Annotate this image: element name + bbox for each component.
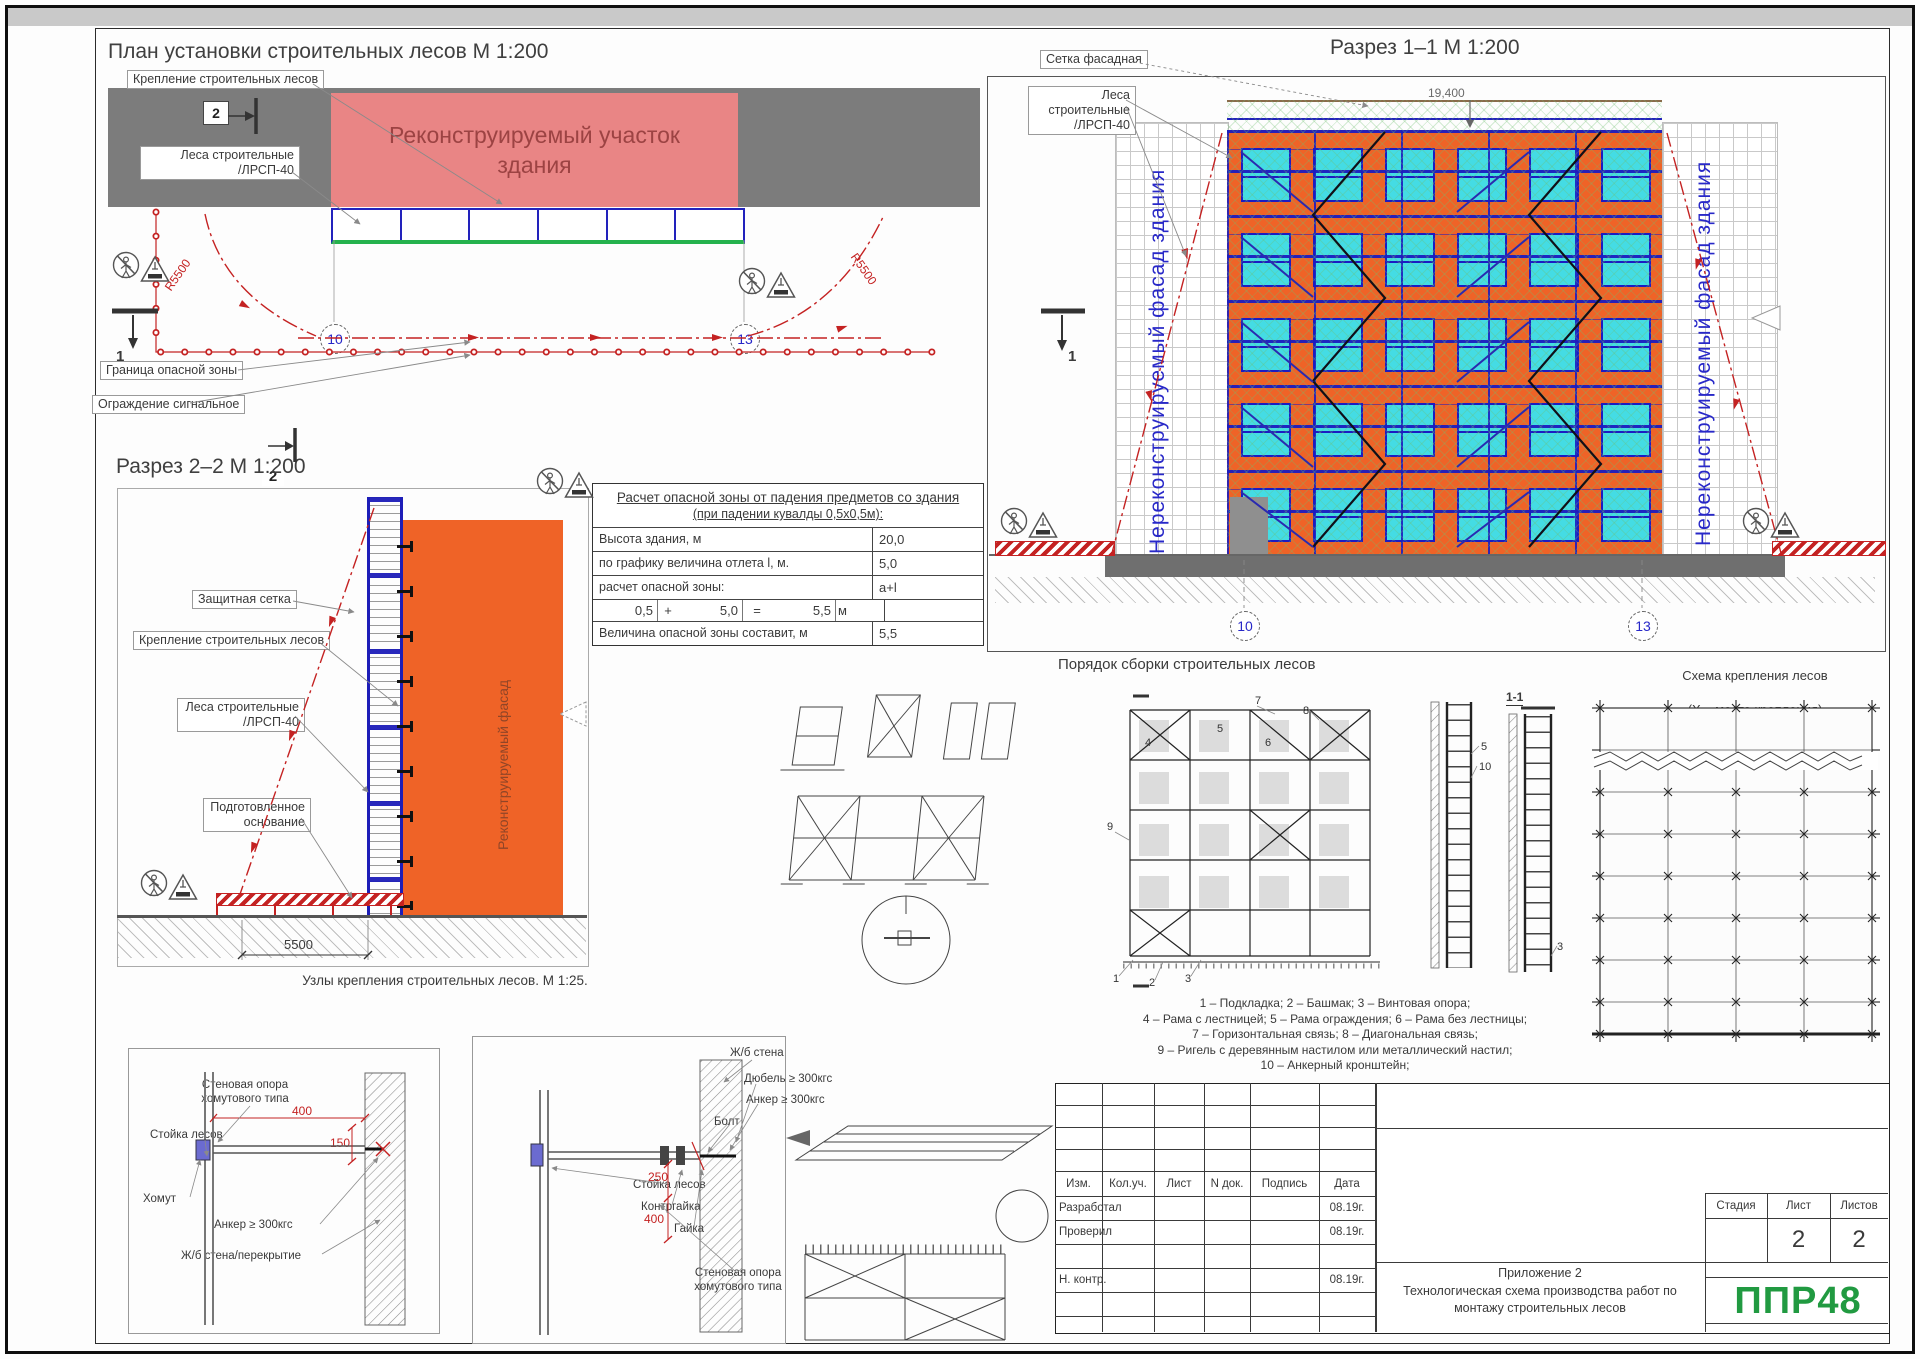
elevation-wall-opening	[1139, 876, 1169, 908]
elevation-wall-opening	[1139, 772, 1169, 804]
elevation-wall-opening	[1319, 876, 1349, 908]
tb-sheet-number: 2	[1767, 1218, 1830, 1262]
tb-sheet-label: Лист	[1767, 1193, 1830, 1218]
tb-line	[1705, 1323, 1888, 1324]
callout-10: 10	[1479, 761, 1491, 773]
tb-appendix: Приложение 2	[1375, 1266, 1705, 1280]
tb-line	[1055, 1316, 1375, 1317]
elevation-wall-opening	[1139, 824, 1169, 856]
no-pedestrian-falling-load-signs	[1002, 509, 1057, 538]
tb-date-1: 08.19г.	[1319, 1197, 1375, 1219]
callout-2: 2	[1149, 977, 1155, 989]
tb-role-nkontr: Н. контр.	[1059, 1269, 1154, 1291]
node-left-drawing	[190, 1072, 405, 1325]
tb-line	[1055, 1244, 1375, 1245]
no-pedestrian-falling-load-signs	[114, 253, 169, 282]
tb-col-data: Дата	[1319, 1172, 1375, 1195]
assembly-iso-sketches	[780, 695, 1052, 1340]
section11-lines	[1041, 62, 1781, 608]
callout-6: 6	[1265, 737, 1271, 749]
tb-col-koluch: Кол.уч.	[1102, 1172, 1154, 1195]
tb-line	[1055, 1105, 1375, 1106]
drawing-sheet: План установки строительных лесов М 1:20…	[0, 0, 1920, 1359]
elevation-wall-opening	[1259, 772, 1289, 804]
assembly-ladder-details: 5 10 3	[1431, 702, 1563, 972]
node-right-drawing	[531, 1060, 758, 1335]
callout-9: 9	[1107, 821, 1113, 833]
elevation-wall-opening	[1259, 876, 1289, 908]
callout-1: 1	[1113, 973, 1119, 985]
tb-date-3: 08.19г.	[1319, 1269, 1375, 1291]
tb-line	[1055, 1127, 1375, 1128]
tb-col-ndok: N док.	[1204, 1172, 1250, 1195]
elevation-wall-opening	[1139, 720, 1169, 752]
tb-line	[1204, 1083, 1205, 1332]
no-pedestrian-falling-load-signs	[538, 469, 593, 498]
tb-doc-title: Технологическая схема производства работ…	[1375, 1283, 1705, 1317]
tb-line	[1250, 1083, 1251, 1332]
elevation-wall-opening	[1199, 876, 1229, 908]
assembly-elevation: 1 2 3 4 5 6 7 8 9	[1107, 695, 1380, 989]
tb-sheets-number: 2	[1830, 1218, 1888, 1262]
attachment-scheme	[1592, 700, 1880, 1042]
facade-braces	[1241, 132, 1601, 547]
tb-role-proveril: Проверил	[1059, 1221, 1154, 1243]
tb-date-2: 08.19г.	[1319, 1221, 1375, 1243]
callout-5b: 5	[1481, 741, 1487, 753]
callout-3: 3	[1185, 973, 1191, 985]
elevation-wall-opening	[1319, 720, 1349, 752]
tb-line	[1154, 1083, 1155, 1332]
tb-line	[1055, 1292, 1375, 1293]
tb-col-izm: Изм.	[1055, 1172, 1102, 1195]
elevation-wall-opening	[1319, 824, 1349, 856]
elevation-wall-opening	[1319, 772, 1349, 804]
section22-lines	[238, 508, 586, 960]
elevation-wall-opening	[1199, 720, 1229, 752]
tb-sheets-label: Листов	[1830, 1193, 1888, 1218]
tb-stage-label: Стадия	[1705, 1193, 1767, 1218]
callout-5: 5	[1217, 723, 1223, 735]
tb-col-podpis: Подпись	[1250, 1172, 1319, 1195]
callout-4: 4	[1145, 737, 1151, 749]
callout-3b: 3	[1557, 941, 1563, 953]
tb-line	[1375, 1128, 1888, 1129]
callout-7: 7	[1255, 695, 1261, 707]
tb-role-razrabotal: Разработал	[1059, 1197, 1154, 1219]
no-pedestrian-falling-load-signs	[142, 871, 197, 900]
elevation-wall-opening	[1199, 772, 1229, 804]
tb-line	[1055, 1149, 1375, 1150]
elevation-wall-opening	[1199, 824, 1229, 856]
callout-8: 8	[1303, 705, 1309, 717]
tb-line	[1375, 1262, 1888, 1263]
elevation-wall-opening	[1259, 720, 1289, 752]
plan-lines	[112, 84, 935, 462]
tb-line	[1705, 1277, 1888, 1278]
ppr48-logo: ППР48	[1708, 1279, 1888, 1323]
no-pedestrian-falling-load-signs	[1744, 509, 1799, 538]
no-pedestrian-falling-load-signs	[740, 269, 795, 298]
tb-col-list: Лист	[1154, 1172, 1204, 1195]
